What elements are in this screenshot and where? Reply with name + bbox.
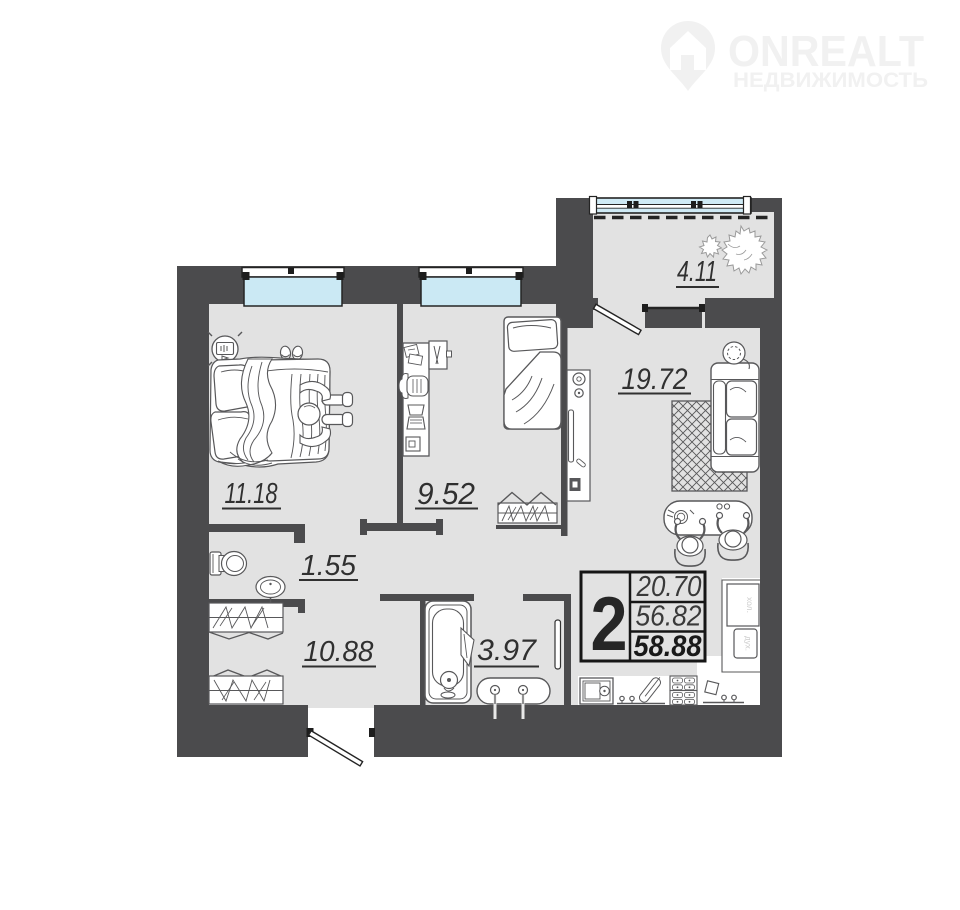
svg-text:10.88: 10.88 <box>304 636 374 668</box>
svg-text:4.11: 4.11 <box>677 256 717 288</box>
svg-text:9.52: 9.52 <box>417 476 475 511</box>
svg-text:1.55: 1.55 <box>301 550 357 582</box>
svg-text:58.88: 58.88 <box>634 630 702 663</box>
svg-text:3.97: 3.97 <box>477 634 537 667</box>
svg-text:56.82: 56.82 <box>636 601 702 633</box>
svg-text:дух.: дух. <box>744 636 753 651</box>
svg-text:хол.: хол. <box>745 597 755 613</box>
svg-text:2: 2 <box>591 582 628 667</box>
svg-text:20.70: 20.70 <box>636 571 702 603</box>
svg-text:11.18: 11.18 <box>225 478 278 510</box>
svg-text:19.72: 19.72 <box>622 363 688 396</box>
svg-text:НЕДВИЖИМОСТЬ: НЕДВИЖИМОСТЬ <box>733 69 928 92</box>
